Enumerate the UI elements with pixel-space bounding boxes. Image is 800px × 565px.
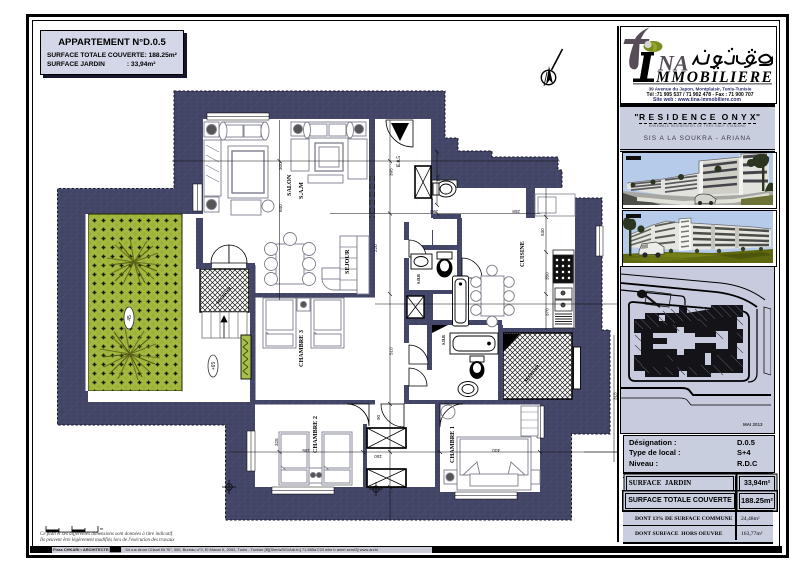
svg-text:530: 530 [540,228,545,236]
svg-text:258: 258 [512,209,520,214]
svg-text:S.D.B: S.D.B [441,335,446,345]
svg-text:300: 300 [278,162,283,170]
svg-text:E.0.5: E.0.5 [397,156,402,167]
svg-text:325: 325 [274,438,279,446]
svg-text:MAI 2013: MAI 2013 [743,422,763,427]
svg-text:CUISINE: CUISINE [519,241,526,267]
svg-text:290: 290 [430,209,438,214]
svg-text:S.D.B: S.D.B [416,274,421,284]
svg-text:220: 220 [373,244,378,252]
svg-text:400: 400 [492,448,500,453]
svg-text:350: 350 [545,272,550,280]
svg-text:SALON: SALON [286,174,293,196]
svg-text:170: 170 [436,174,441,182]
svg-text:CHAMBRE 2: CHAMBRE 2 [312,416,319,453]
svg-text:SEJOUR: SEJOUR [344,249,351,274]
svg-text:185: 185 [302,448,310,453]
svg-text:CHAMBRE 1: CHAMBRE 1 [449,426,456,463]
svg-text:45: 45 [127,315,133,321]
svg-text:MMOBILIERE: MMOBILIERE [655,69,772,86]
svg-text:S.A.M: S.A.M [298,182,305,199]
svg-text:640: 640 [278,204,283,212]
svg-text:90: 90 [376,414,381,420]
svg-text:m: m [100,526,104,531]
svg-text:395: 395 [389,168,394,176]
svg-text:39 Avenue du Japon, Montplaisi: 39 Avenue du Japon, Montplaisir, Tunis-T… [649,87,752,92]
svg-text:370: 370 [545,308,550,316]
svg-text:CHAMBRE 3: CHAMBRE 3 [298,330,305,367]
svg-text:+65: +65 [211,362,217,371]
svg-text:510: 510 [389,347,394,355]
svg-text:150: 150 [374,454,382,459]
